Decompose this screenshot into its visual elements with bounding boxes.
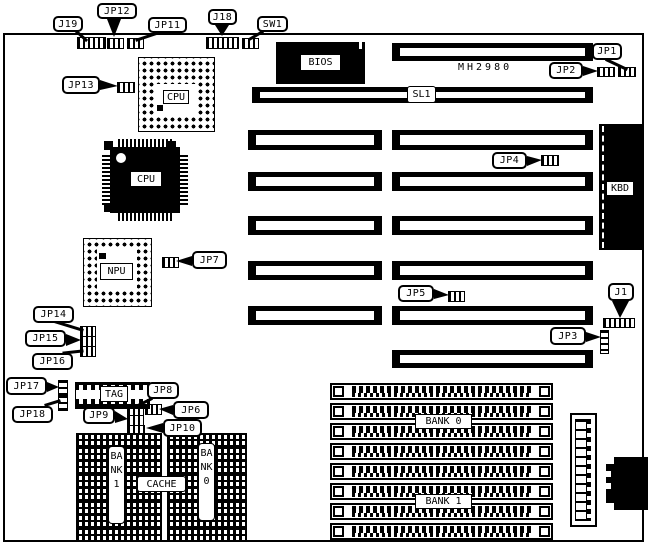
cache-bank0-label: BANK0 <box>198 443 215 521</box>
sl1-label: SL1 <box>407 86 436 103</box>
npu-label-text: NPU <box>107 266 125 277</box>
callout-sw1: SW1 <box>257 16 288 32</box>
callout-jp14: JP14 <box>33 306 74 323</box>
motherboard-diagram: CPU BIOS SL1 MH2980 CPU NPU <box>0 0 649 551</box>
bios-label: BIOS <box>300 54 341 71</box>
cpu-qfp-label: CPU <box>130 171 162 187</box>
callout-jp1-text: JP1 <box>597 46 617 57</box>
cache-bank1-label: BANK1 <box>108 446 125 524</box>
callout-jp11-text: JP11 <box>154 20 180 31</box>
callout-j18: J18 <box>208 9 237 25</box>
simm-bank0-label-text: BANK 0 <box>425 416 461 427</box>
npu-label: NPU <box>100 263 133 280</box>
cache-label: CACHE <box>137 476 186 492</box>
callout-jp6-text: JP6 <box>181 405 201 416</box>
callout-jp14-text: JP14 <box>40 309 66 320</box>
callout-jp10-text: JP10 <box>169 423 195 434</box>
callout-jp7-text: JP7 <box>200 255 220 266</box>
callout-jp6: JP6 <box>173 401 209 419</box>
callout-j1: J1 <box>608 283 634 301</box>
callout-jp9-text: JP9 <box>89 410 109 421</box>
callout-jp16-text: JP16 <box>39 356 65 367</box>
callout-jp12: JP12 <box>97 3 137 19</box>
callout-jp16: JP16 <box>32 353 73 370</box>
callout-jp15-text: JP15 <box>32 333 58 344</box>
callout-jp3-text: JP3 <box>558 331 578 342</box>
callout-j19-text: J19 <box>58 19 78 30</box>
callout-jp8: JP8 <box>147 382 179 399</box>
tag-label-text: TAG <box>105 389 123 400</box>
callout-jp18: JP18 <box>12 406 53 423</box>
cache-label-text: CACHE <box>146 479 176 490</box>
callout-jp17: JP17 <box>6 377 47 395</box>
callout-jp15: JP15 <box>25 330 66 347</box>
board-model-text: MH2980 <box>458 62 512 73</box>
callout-jp8-text: JP8 <box>153 385 173 396</box>
tag-label: TAG <box>100 386 128 402</box>
callout-jp2-text: JP2 <box>556 65 576 76</box>
callout-jp3: JP3 <box>550 327 586 345</box>
callout-jp12-text: JP12 <box>104 6 130 17</box>
cpu-socket-label: CPU <box>163 90 189 104</box>
callout-jp5: JP5 <box>398 285 434 302</box>
callout-jp10: JP10 <box>163 419 202 437</box>
cpu-qfp-label-text: CPU <box>137 174 155 185</box>
callout-jp9: JP9 <box>83 407 115 424</box>
kbd-label: KBD <box>606 181 634 196</box>
callout-jp13-text: JP13 <box>68 80 94 91</box>
callout-sw1-text: SW1 <box>263 19 283 30</box>
cpu-socket-label-text: CPU <box>167 92 185 103</box>
callout-jp7: JP7 <box>192 251 227 269</box>
callout-jp17-text: JP17 <box>13 381 39 392</box>
callout-jp1: JP1 <box>592 43 622 60</box>
kbd-label-text: KBD <box>611 183 629 194</box>
callout-jp4-text: JP4 <box>500 155 520 166</box>
callout-j1-text: J1 <box>614 287 627 298</box>
callout-jp11: JP11 <box>148 17 187 33</box>
simm-bank1-label-text: BANK 1 <box>425 496 461 507</box>
callout-j19: J19 <box>53 16 83 32</box>
callout-jp18-text: JP18 <box>19 409 45 420</box>
sl1-label-text: SL1 <box>412 89 430 100</box>
callout-jp13: JP13 <box>62 76 100 94</box>
callout-j18-text: J18 <box>213 12 233 23</box>
callout-jp5-text: JP5 <box>406 288 426 299</box>
callout-jp4: JP4 <box>492 152 527 169</box>
simm-bank1-label: BANK 1 <box>415 494 472 509</box>
bios-label-text: BIOS <box>308 57 332 68</box>
callout-jp2: JP2 <box>549 62 583 79</box>
simm-bank0-label: BANK 0 <box>415 414 472 429</box>
